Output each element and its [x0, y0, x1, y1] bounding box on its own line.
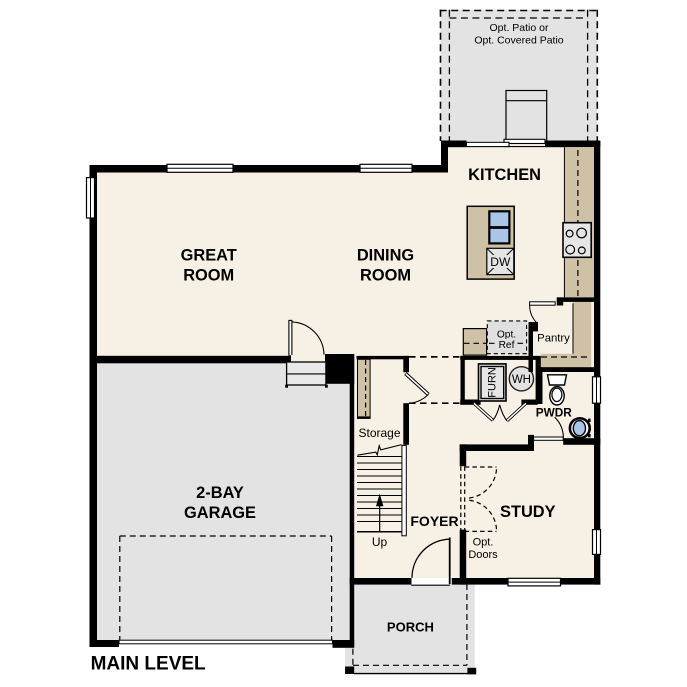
- svg-text:ROOM: ROOM: [183, 266, 234, 284]
- svg-text:Doors: Doors: [468, 549, 498, 561]
- svg-text:GARAGE: GARAGE: [184, 504, 256, 522]
- svg-text:GREAT: GREAT: [181, 246, 237, 264]
- svg-text:Pantry: Pantry: [537, 333, 570, 345]
- svg-text:DW: DW: [490, 255, 511, 269]
- svg-text:Up: Up: [372, 535, 388, 549]
- svg-text:2-BAY: 2-BAY: [196, 484, 244, 502]
- svg-text:Ref: Ref: [499, 340, 515, 351]
- svg-text:PORCH: PORCH: [387, 619, 434, 634]
- svg-text:KITCHEN: KITCHEN: [468, 166, 541, 184]
- svg-text:FURN: FURN: [486, 367, 498, 398]
- svg-text:PWDR: PWDR: [536, 406, 573, 420]
- svg-text:FOYER: FOYER: [410, 513, 458, 529]
- svg-text:MAIN LEVEL: MAIN LEVEL: [91, 654, 206, 675]
- svg-text:Opt.: Opt.: [473, 536, 494, 548]
- svg-text:STUDY: STUDY: [500, 503, 556, 521]
- svg-text:DINING: DINING: [357, 246, 414, 264]
- svg-text:Opt.: Opt.: [497, 330, 516, 341]
- svg-text:Storage: Storage: [358, 426, 400, 440]
- svg-text:ROOM: ROOM: [360, 266, 411, 284]
- svg-text:Opt. Patio or: Opt. Patio or: [490, 22, 549, 34]
- svg-text:WH: WH: [512, 374, 531, 386]
- svg-text:Opt. Covered Patio: Opt. Covered Patio: [474, 35, 563, 47]
